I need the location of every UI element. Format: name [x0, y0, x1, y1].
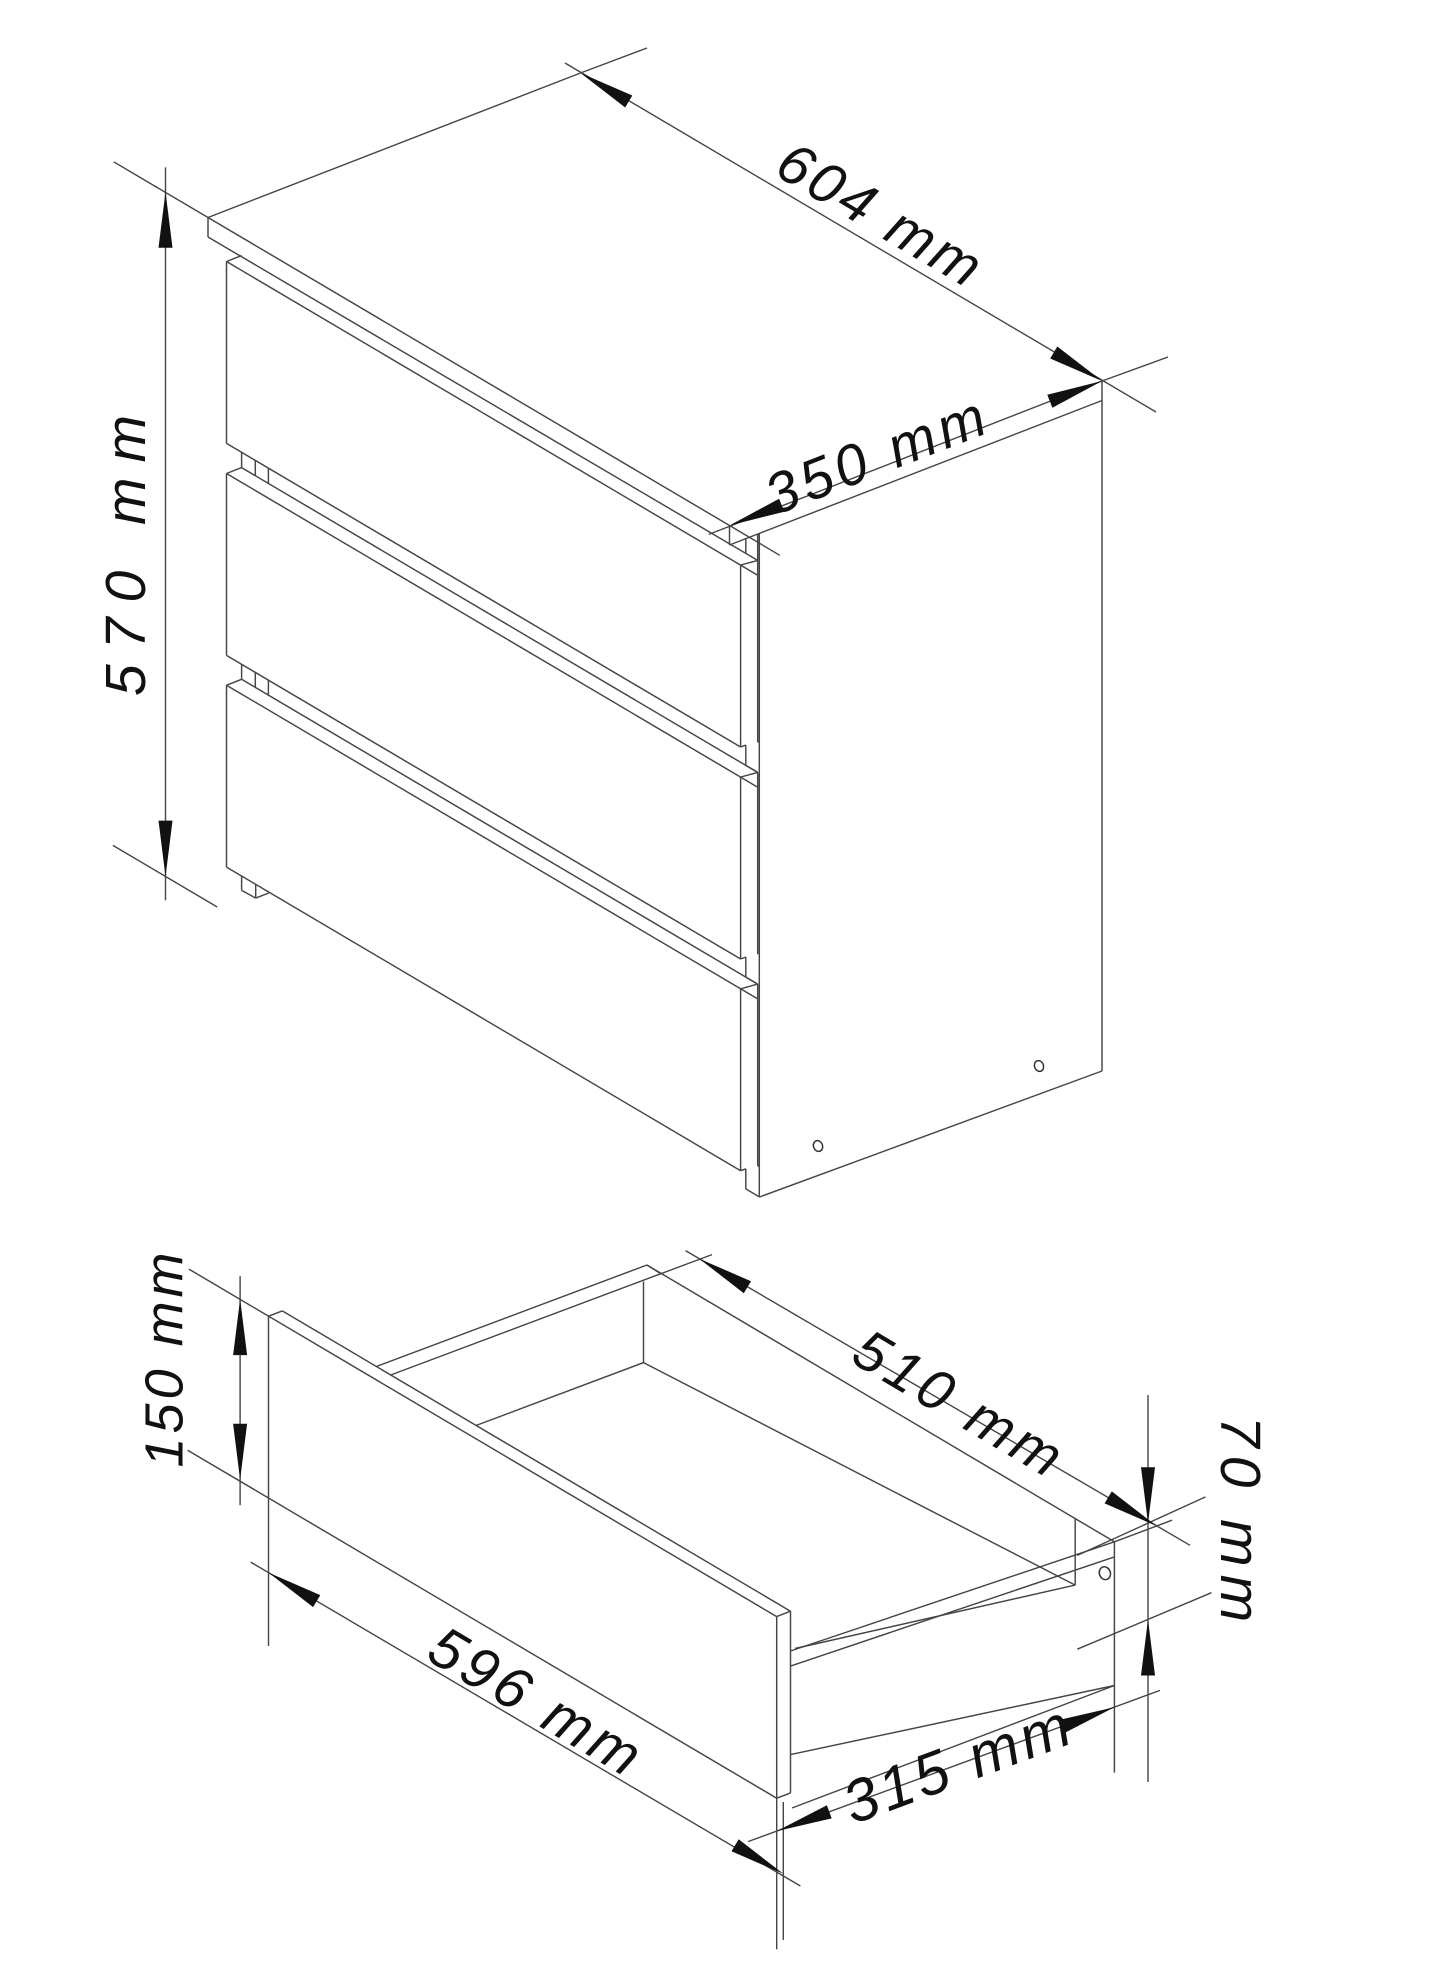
svg-text:150 mm: 150 mm [134, 1248, 194, 1467]
svg-text:570 mm: 570 mm [94, 400, 158, 696]
svg-text:70 mm: 70 mm [1208, 1416, 1272, 1630]
